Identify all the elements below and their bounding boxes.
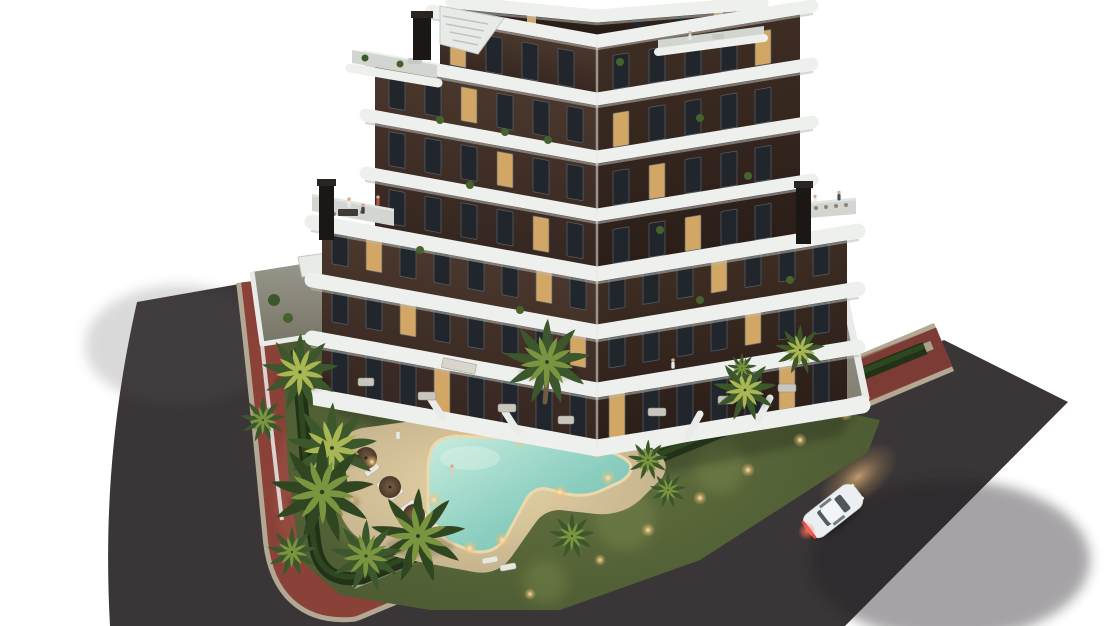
person [347, 197, 351, 207]
lit-window [497, 151, 513, 188]
window [425, 138, 441, 175]
window [613, 169, 629, 206]
architectural-render [0, 0, 1110, 626]
window [567, 222, 583, 259]
window [721, 209, 737, 246]
window [461, 203, 477, 240]
window [558, 48, 574, 87]
person [396, 428, 400, 439]
window [497, 209, 513, 246]
person [450, 464, 454, 474]
window [755, 87, 771, 124]
window [486, 35, 502, 74]
window [721, 93, 737, 130]
window [613, 227, 629, 264]
render-canvas [0, 0, 1110, 626]
lit-window [649, 163, 665, 200]
lit-window [461, 87, 477, 124]
window [755, 145, 771, 182]
window [685, 157, 701, 194]
window [533, 100, 549, 137]
apartment-building [312, 2, 866, 452]
lit-window [685, 215, 701, 252]
person [813, 195, 816, 205]
chimney [319, 182, 334, 240]
window [461, 145, 477, 182]
person [361, 203, 365, 213]
person [688, 31, 691, 40]
window [497, 93, 513, 130]
window [425, 196, 441, 233]
water-highlight [440, 446, 500, 470]
lit-window [613, 111, 629, 148]
window [649, 105, 665, 142]
window [533, 158, 549, 195]
chimney [413, 14, 431, 60]
window [389, 132, 405, 169]
person [671, 358, 675, 368]
window [755, 203, 771, 240]
person [837, 191, 840, 201]
person [376, 195, 380, 205]
window [567, 106, 583, 143]
window [522, 42, 538, 81]
window [649, 221, 665, 258]
terrace-table [338, 209, 358, 216]
chimney [796, 184, 811, 244]
lit-window [533, 216, 549, 253]
window [567, 164, 583, 201]
window [721, 151, 737, 188]
